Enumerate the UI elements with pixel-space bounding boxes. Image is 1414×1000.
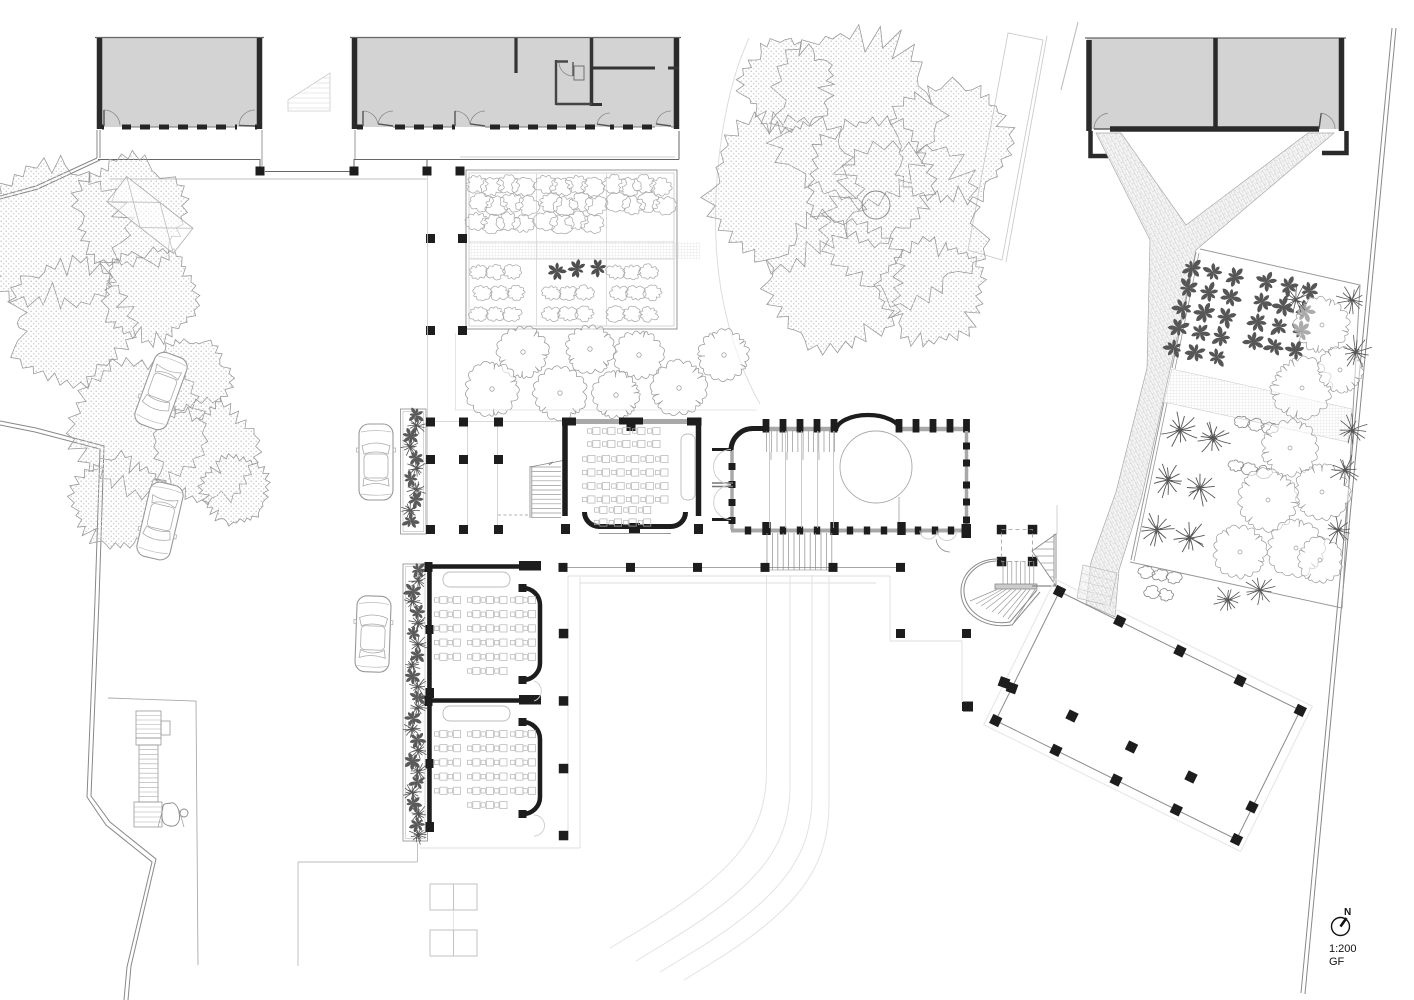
svg-text:1:200: 1:200 <box>1329 943 1357 955</box>
svg-text:N: N <box>1344 907 1351 918</box>
svg-text:GF: GF <box>1329 956 1345 968</box>
